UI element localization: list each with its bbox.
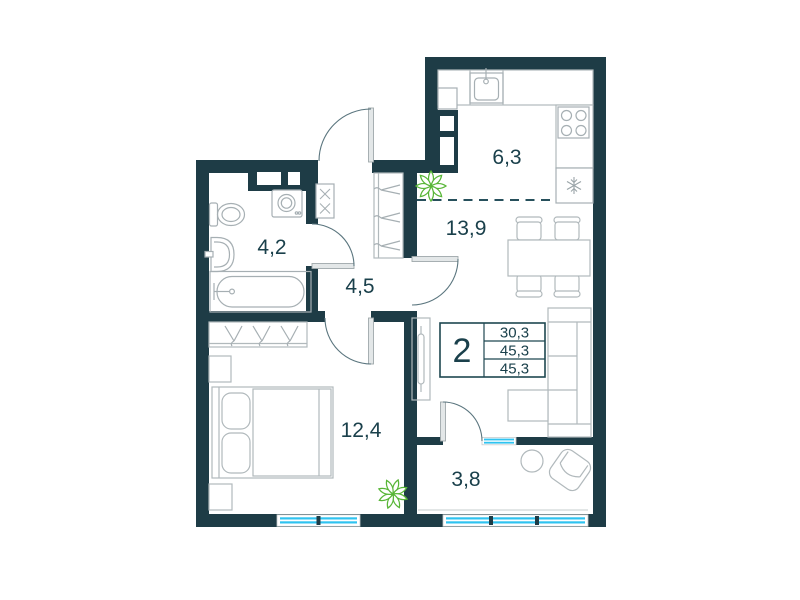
balcony-glazing-icon [443,515,588,527]
balcony-furniture [521,446,594,493]
floor-plan-page: 2 30,3 45,3 45,3 [0,0,800,600]
room-label-balcony: 3,8 [451,468,480,491]
fridge-icon [556,168,593,203]
kitchen-sink-icon [470,68,503,103]
bedroom-furniture [209,322,333,510]
room-label-bedroom: 12,4 [341,419,382,442]
washing-machine-icon [272,190,302,217]
living-room-door-icon [412,257,458,306]
chair-icon [554,291,580,297]
window-icon [277,515,360,527]
wall-left-exterior [196,160,209,527]
room-label-hallway: 4,5 [345,275,374,298]
stats-area-2: 45,3 [500,343,529,360]
wall-right-exterior [593,57,606,527]
balcony-door-icon [441,402,483,441]
bathroom-door-icon [312,224,354,269]
wall-bedroom-right [404,311,417,514]
wall-bathroom-right-lower [306,266,318,311]
wall-bedroom-top-left [196,311,325,322]
ventilation-shaft-icon [433,110,458,173]
chair-icon [516,291,542,297]
wall-balcony-top-left [417,437,443,445]
stats-rooms-count: 2 [453,332,472,370]
pillow-icon [222,433,250,473]
electric-panel-icon [316,184,334,218]
room-label-bathroom: 4,2 [257,236,286,259]
room-label-living: 13,9 [446,217,487,240]
duct-box [438,88,457,109]
wall-balcony-top-right [516,437,593,445]
toilet-icon [210,203,245,226]
wall-top-kitchen [425,57,606,70]
dining-table-icon [508,217,590,297]
bedroom-door-icon [325,318,374,364]
kitchen-counter [438,70,593,105]
wall-closet-side [403,173,417,258]
stats-area-1: 30,3 [500,325,529,342]
entrance-door-icon [319,108,374,162]
bathtub-icon [210,272,311,313]
bed-icon [212,387,333,478]
wardrobe-hangers-icon [374,173,403,258]
round-table-icon [521,450,543,472]
window-icon [482,437,516,444]
armchair-icon [546,446,593,493]
plant-icon [416,171,446,201]
floor-plan-svg: 2 30,3 45,3 45,3 [0,0,800,600]
pillow-icon [222,393,250,429]
living-room-furniture: 2 30,3 45,3 45,3 [412,217,591,437]
nightstand-icon [209,484,232,510]
ventilation-shaft-icon [248,167,313,191]
hallway-fixtures [316,173,403,258]
wardrobe-hangers-icon [209,322,307,347]
wash-basin-icon [205,238,234,272]
nightstand-icon [209,356,231,382]
apartment-stats-table: 2 30,3 45,3 45,3 [440,323,545,378]
room-label-kitchen: 6,3 [492,146,521,169]
stats-area-3: 45,3 [500,361,529,378]
